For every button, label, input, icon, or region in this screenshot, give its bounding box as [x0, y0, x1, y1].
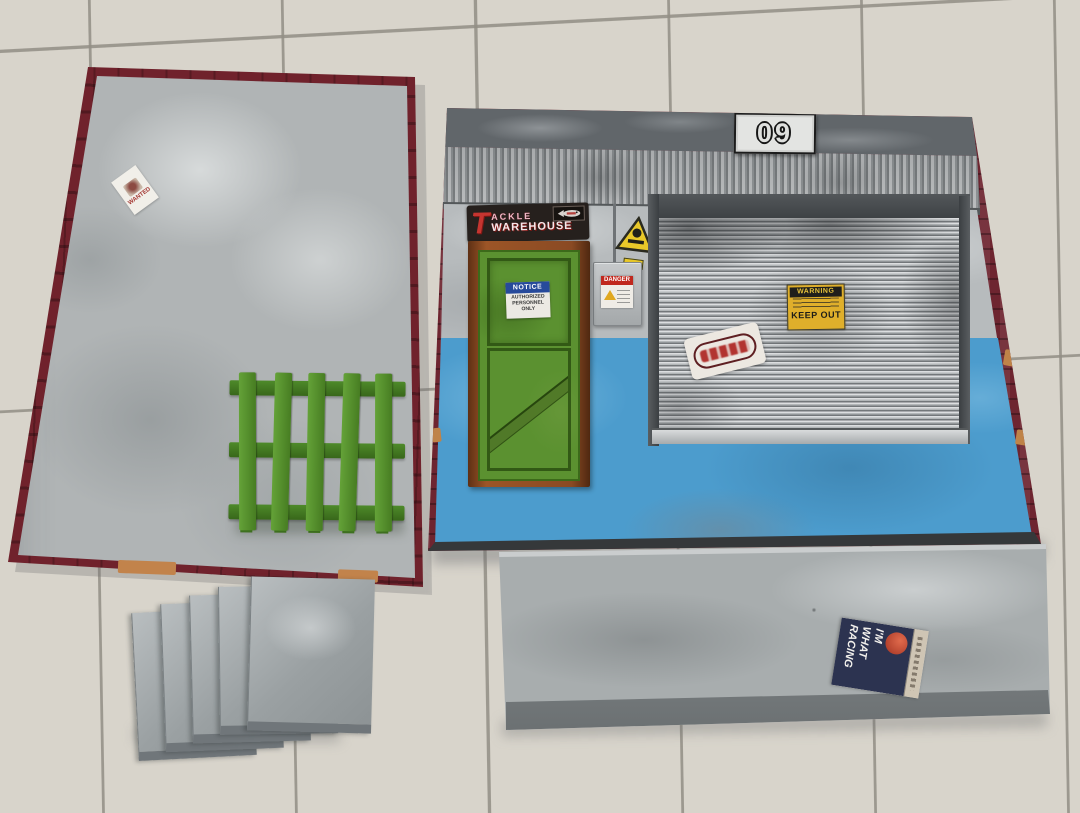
warning-title: WARNING	[790, 287, 842, 298]
fish-logo-icon	[553, 206, 585, 222]
roller-door-header	[648, 194, 970, 220]
danger-sticker: DANGER	[601, 276, 633, 308]
pallet-slat	[375, 374, 392, 532]
unit-number: 09	[757, 118, 793, 149]
green-pallet	[235, 376, 398, 529]
roller-shutter: WARNING KEEP OUT	[659, 218, 959, 430]
pallet-slat	[306, 373, 326, 531]
warehouse-facade: 09 T ACKLE WAREHOUSE	[420, 98, 1052, 560]
orange-brick-accent	[118, 560, 176, 575]
stacked-slabs	[133, 574, 353, 752]
door-lower-panel	[487, 348, 571, 471]
front-slab-front-edge	[494, 540, 1052, 732]
unit-number-plate: 09	[734, 113, 816, 155]
door-diagonal-brace	[487, 371, 571, 458]
tackle-warehouse-sticker: T ACKLE WAREHOUSE	[467, 202, 590, 242]
slab	[247, 576, 375, 733]
red-logo-oval	[691, 331, 759, 372]
racing-poster-sticker: I'M WHAT RACING	[831, 618, 929, 699]
danger-sticker-body	[601, 285, 633, 308]
warning-triangle-icon	[604, 290, 616, 300]
notice-sign: NOTICE AUTHORIZED PERSONNEL ONLY	[505, 281, 550, 319]
keep-out-sticker: WARNING KEEP OUT	[787, 283, 846, 330]
red-logo-lettering	[699, 339, 750, 363]
brand-initial: T	[471, 211, 490, 237]
roller-door-jamb-right	[959, 196, 970, 444]
pallet-slat	[239, 372, 256, 530]
junction-box: DANGER	[593, 262, 642, 326]
front-slab: I'M WHAT RACING	[494, 540, 1052, 732]
poster-body: I'M WHAT RACING	[831, 618, 914, 697]
red-ball-graphic	[884, 631, 909, 656]
notice-sign-text: AUTHORIZED PERSONNEL ONLY	[509, 292, 547, 313]
keep-out-text: KEEP OUT	[790, 310, 842, 321]
roller-door-jamb-left	[648, 194, 659, 446]
danger-sticker-title: DANGER	[601, 276, 633, 285]
red-logo-sticker	[683, 321, 767, 380]
danger-fine-print	[617, 290, 630, 304]
brand-word-warehouse: WAREHOUSE	[491, 220, 572, 234]
warning-fine-print	[793, 298, 839, 310]
green-door: NOTICE AUTHORIZED PERSONNEL ONLY	[478, 250, 580, 481]
diorama-photo: WANTED 09 T ACKLE	[0, 0, 1080, 813]
roller-door-sill	[652, 428, 968, 444]
poster-text: I'M WHAT RACING	[840, 623, 885, 672]
